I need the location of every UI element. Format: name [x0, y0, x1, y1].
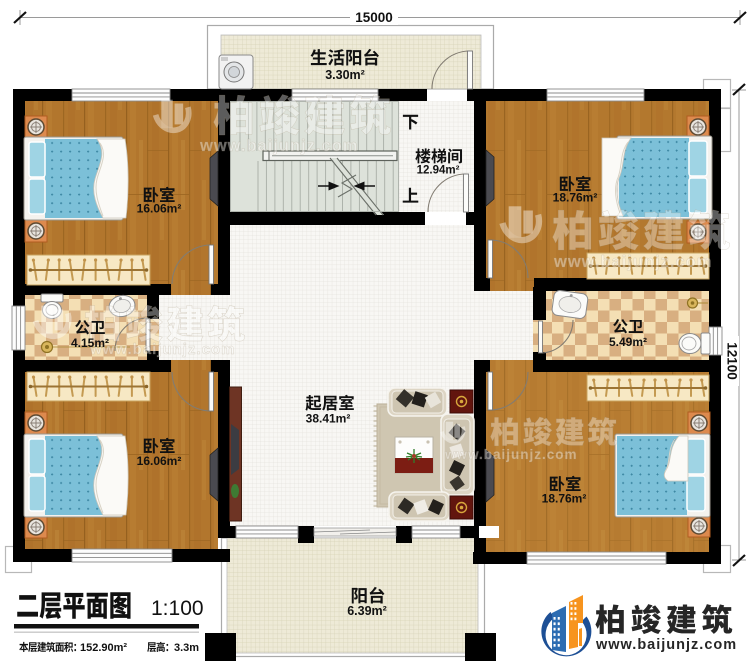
svg-text:16.06m²: 16.06m²: [137, 202, 182, 216]
svg-text:3.30m²: 3.30m²: [325, 68, 365, 82]
svg-text:12100: 12100: [725, 342, 740, 380]
svg-text:12.94m²: 12.94m²: [417, 165, 460, 177]
svg-text:18.76m²: 18.76m²: [553, 191, 598, 205]
svg-text:6.39m²: 6.39m²: [347, 604, 387, 618]
svg-text:www.baijunjz.com: www.baijunjz.com: [199, 137, 358, 155]
svg-text:www.baijunjz.com: www.baijunjz.com: [89, 341, 235, 358]
svg-text:18.76m²: 18.76m²: [542, 492, 587, 506]
svg-text:15000: 15000: [355, 10, 393, 25]
svg-text:1:100: 1:100: [151, 597, 204, 620]
svg-text:www.baijunjz.com: www.baijunjz.com: [595, 637, 737, 653]
svg-text:www.baijunjz.com: www.baijunjz.com: [444, 447, 578, 462]
svg-text:www.baijunjz.com: www.baijunjz.com: [553, 253, 712, 271]
svg-text:4.15m²: 4.15m²: [71, 336, 109, 350]
svg-text:3.3m: 3.3m: [174, 642, 199, 654]
svg-text:16.06m²: 16.06m²: [137, 454, 182, 468]
svg-text:38.41m²: 38.41m²: [306, 412, 351, 426]
svg-text:152.90m²: 152.90m²: [80, 642, 127, 654]
svg-text:5.49m²: 5.49m²: [609, 335, 647, 349]
